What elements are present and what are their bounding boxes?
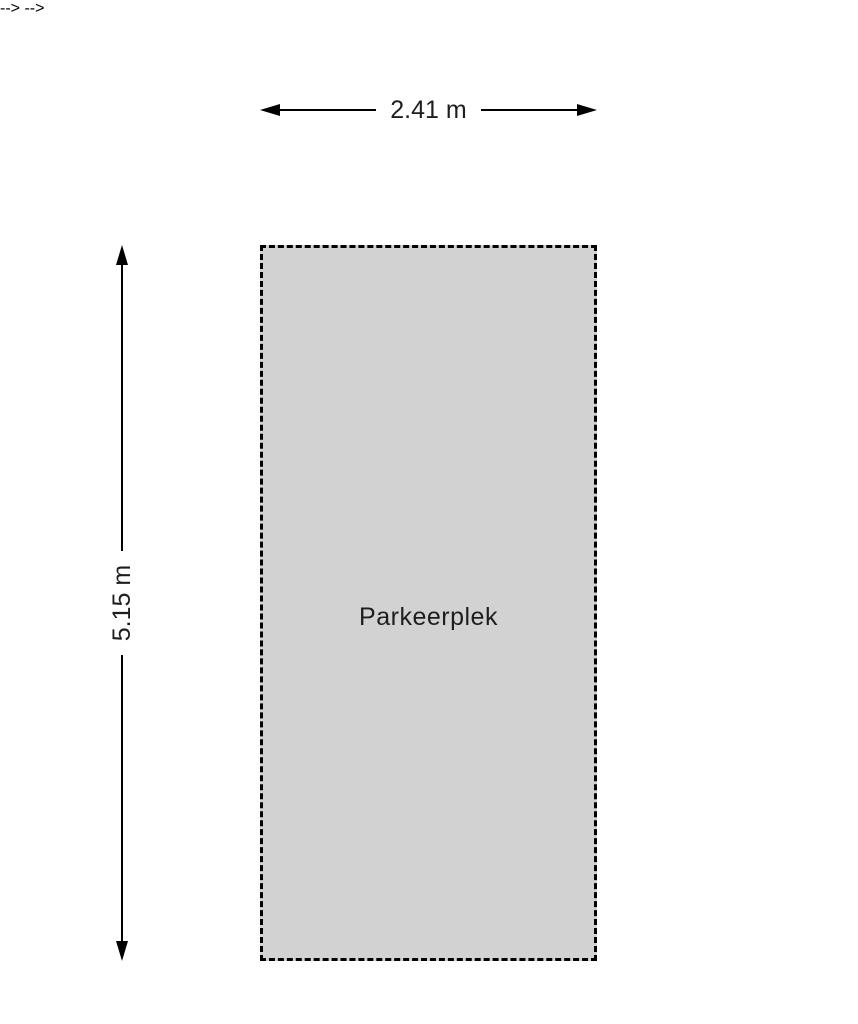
- dimension-line: [280, 109, 376, 111]
- height-dimension-label: 5.15 m: [105, 551, 139, 655]
- arrow-left-icon: [260, 104, 280, 116]
- floorplan-canvas: --> 2.41 m --> 5.15 m Parkeerplek: [0, 0, 858, 1024]
- arrow-up-icon: [116, 245, 128, 265]
- width-dimension-label: 2.41 m: [376, 93, 480, 127]
- width-dimension: 2.41 m: [260, 93, 597, 127]
- parking-space-room: Parkeerplek: [260, 245, 597, 961]
- dimension-line: [121, 265, 123, 551]
- height-dimension: 5.15 m: [105, 245, 139, 961]
- room-label: Parkeerplek: [359, 603, 498, 632]
- arrow-right-icon: [577, 104, 597, 116]
- dimension-line: [481, 109, 577, 111]
- dimension-line: [121, 655, 123, 941]
- arrow-down-icon: [116, 941, 128, 961]
